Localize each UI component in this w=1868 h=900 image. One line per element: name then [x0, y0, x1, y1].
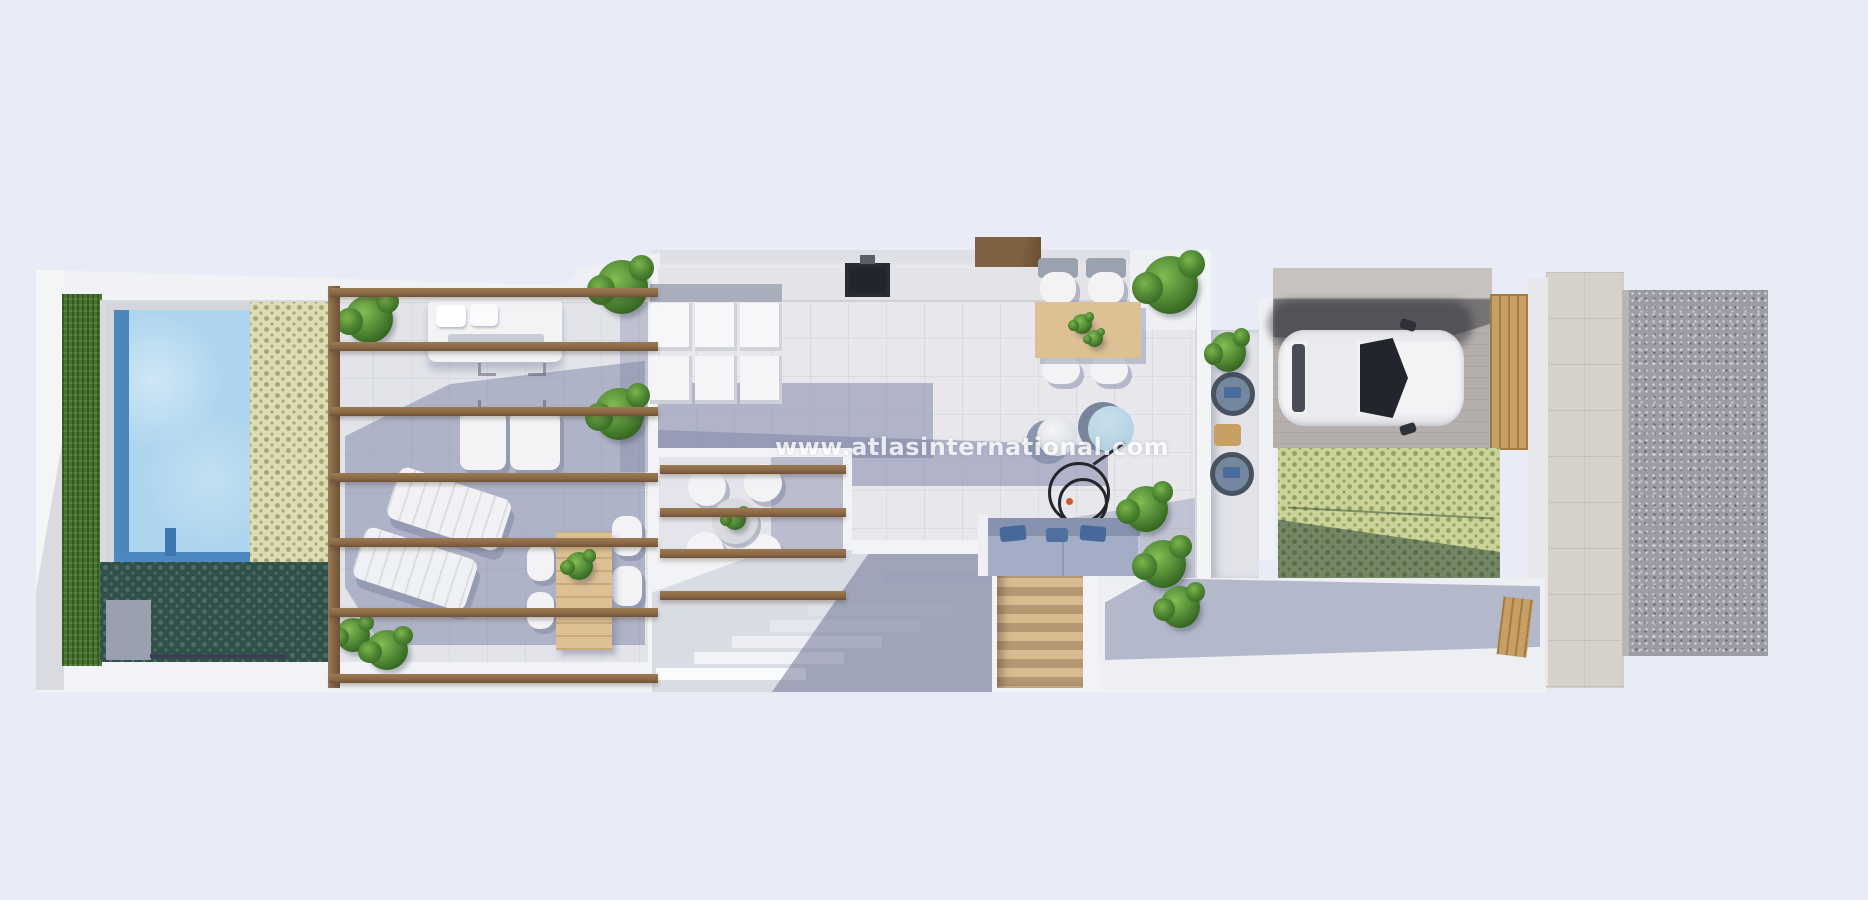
modular-seat [740, 356, 782, 404]
pergola-beam [330, 608, 658, 617]
entry-canopy [975, 237, 1041, 267]
curb [1622, 290, 1629, 656]
sofa-seat [988, 536, 1140, 576]
sofa-pillow [999, 525, 1026, 543]
outdoor-dining-table [556, 532, 612, 650]
modular-seat [740, 303, 782, 351]
mosaic-patio-left [250, 302, 335, 562]
sofa-armrest [978, 514, 988, 576]
driveway-entry [1273, 268, 1492, 302]
wall-light-shadow [478, 363, 496, 376]
centerpiece-plant [1086, 330, 1103, 347]
plant [1124, 486, 1168, 532]
plant [1142, 256, 1198, 314]
courtyard-beam [660, 508, 846, 517]
courtyard-beam [660, 465, 846, 474]
dining-chair [1090, 356, 1128, 384]
exterior-staircase [652, 550, 992, 692]
sofa-cushion-gap [1062, 536, 1064, 576]
hanging-chair [1210, 452, 1254, 496]
modular-seat [695, 303, 737, 351]
tv-screen [845, 263, 890, 297]
hanging-chair-pillow [1223, 467, 1240, 478]
table-plant [565, 552, 593, 580]
road-gravel [1629, 290, 1768, 656]
balcony-side-table [1214, 424, 1241, 446]
terrace-armchair [510, 410, 560, 470]
dining-chair [1088, 272, 1124, 304]
seat-backrest-band [650, 284, 782, 302]
outdoor-chair [527, 544, 554, 581]
pergola-beam [330, 473, 658, 482]
plant [366, 630, 408, 670]
wooden-staircase [997, 560, 1083, 688]
sofa-pillow [1046, 528, 1068, 542]
sofa-pillow [1079, 525, 1106, 542]
pergola-beam [330, 674, 658, 683]
plant [1210, 332, 1246, 372]
stair-top-wall [852, 540, 992, 554]
terrace-armchair [460, 410, 506, 470]
drain-channel [150, 654, 286, 658]
watermark: www.atlasinternational.com [775, 433, 1095, 461]
modular-seat [650, 356, 692, 404]
pool-deep-edge-left [114, 310, 129, 592]
plant [596, 260, 648, 314]
plant [345, 295, 393, 343]
daybed-pillow [436, 305, 466, 327]
pool-water [114, 310, 250, 592]
pergola-beam [330, 407, 658, 416]
stair-side-wall [1083, 556, 1099, 690]
pergola-beam [330, 538, 658, 547]
courtyard-beam [660, 591, 846, 600]
plant [1140, 540, 1186, 588]
car [1278, 326, 1464, 428]
outdoor-chair [612, 516, 642, 556]
pergola-beam [330, 342, 658, 351]
decor-accent [1066, 498, 1073, 505]
daybed [428, 298, 562, 362]
left-boundary-wall [36, 270, 64, 690]
daybed-pillow [470, 304, 498, 326]
plant [1160, 586, 1200, 628]
car-rear-window [1292, 344, 1305, 412]
hedge [62, 294, 102, 666]
floorplan-render: www.atlasinternational.com [0, 0, 1868, 900]
wall-light-shadow [528, 363, 546, 376]
car-roof [1306, 340, 1358, 416]
hanging-chair [1211, 372, 1255, 416]
dining-chair [1040, 272, 1076, 304]
sidewalk [1546, 272, 1624, 688]
tv-mount [860, 255, 875, 264]
modular-seat [695, 356, 737, 404]
pergola-beam [330, 288, 658, 297]
sofa [988, 518, 1140, 576]
garden-gate [1490, 294, 1528, 450]
outdoor-chair [612, 566, 642, 606]
dining-chair [1042, 356, 1080, 384]
outdoor-shower-tray [106, 600, 151, 660]
courtyard-beam [660, 549, 846, 558]
hanging-chair-pillow [1224, 387, 1241, 398]
pool-ladder [165, 528, 176, 556]
